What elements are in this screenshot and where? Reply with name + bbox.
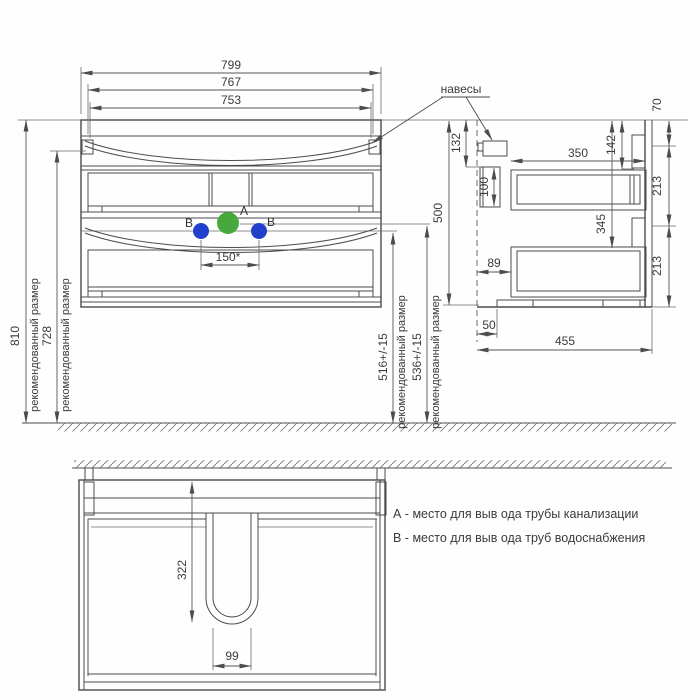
wall-hanger: [483, 141, 507, 156]
side-view: [477, 120, 652, 342]
dim-drawer2-offset: 345: [594, 214, 608, 234]
dim-height-total: 810: [8, 326, 22, 346]
dim-siphon-width: 99: [225, 649, 239, 663]
front-view-dimensions: 799 767 753 810 рекомендованный размер 7…: [8, 58, 442, 429]
siphon-cutout-inner: [213, 513, 251, 617]
dim-total-depth: 455: [555, 334, 575, 348]
dim-water-spacing: 150*: [216, 250, 241, 264]
dim-drawer-front-upper: 213: [650, 176, 664, 196]
dim-siphon-depth: 322: [175, 560, 189, 580]
label-point-b-left: B: [185, 216, 193, 230]
front-view: [81, 120, 430, 307]
dim-height-drain: 536+/-15: [410, 333, 424, 381]
dim-total-height: 500: [431, 203, 445, 223]
dim-width-total: 799: [221, 58, 241, 72]
dim-wall-gap: 89: [487, 256, 501, 270]
siphon-cutout-outer: [206, 513, 258, 624]
drawing-canvas: A B B 799 767 753 810 рекомендованный ра…: [0, 0, 700, 700]
dim-drawer-depth: 350: [568, 146, 588, 160]
dim-height-water: 516+/-15: [376, 333, 390, 381]
foot-right: [603, 300, 640, 307]
side-view-dimensions: 132 100 350 500 142 345 89 70 213 213 50…: [431, 98, 676, 354]
rec-size-label-536: рекомендованный размер: [430, 295, 442, 429]
dim-hanger-height: 132: [449, 133, 463, 153]
hangers-callout: навесы: [372, 82, 492, 143]
drain-point-a: [217, 212, 239, 234]
ground-hatch: [58, 424, 672, 432]
dim-height-hanger: 728: [40, 326, 54, 346]
hangers-label: навесы: [441, 82, 482, 96]
dim-bracket-height: 100: [477, 177, 491, 197]
legend: А - место для выв ода трубы канализации …: [393, 507, 645, 545]
reference-lines: [18, 120, 688, 468]
legend-line-b: В - место для выв ода труб водоснабжения: [393, 531, 645, 545]
wall-hatch: [74, 460, 666, 468]
dim-width-inner: 767: [221, 75, 241, 89]
water-point-b-left: [193, 223, 209, 239]
label-point-b-right: B: [267, 215, 275, 229]
water-point-b-right: [251, 223, 267, 239]
foot-left: [497, 300, 533, 307]
label-point-a: A: [240, 204, 248, 218]
rec-size-label-728: рекомендованный размер: [60, 278, 72, 412]
dim-width-basin: 753: [221, 93, 241, 107]
dim-top-inset: 142: [604, 135, 618, 155]
pipe-outlet-points: A B B: [185, 204, 275, 239]
legend-line-a: А - место для выв ода трубы канализации: [393, 507, 638, 521]
dim-foot-inset: 50: [482, 318, 496, 332]
vanity-technical-drawing: A B B 799 767 753 810 рекомендованный ра…: [0, 0, 700, 700]
dim-drawer-front-lower: 213: [650, 256, 664, 276]
rec-size-label-516: рекомендованный размер: [396, 295, 408, 429]
dim-top-rail: 70: [650, 98, 664, 112]
